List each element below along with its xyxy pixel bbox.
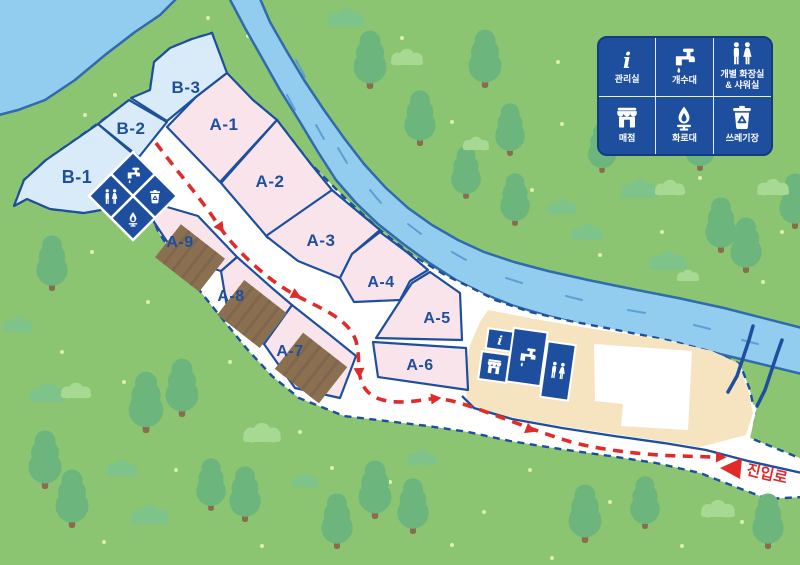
fire-icon bbox=[671, 105, 697, 131]
legend-item-label: 매점 bbox=[619, 133, 636, 144]
plot-label: B-1 bbox=[62, 167, 93, 187]
store-icon bbox=[614, 105, 640, 131]
legend: 관리실 개수대 개별 화장실 & 샤워실 매점 화로대 쓰레기장 bbox=[597, 36, 773, 156]
plot-label: A-9 bbox=[166, 234, 193, 251]
plot-label: A-5 bbox=[423, 310, 450, 327]
legend-item-store: 매점 bbox=[599, 97, 656, 155]
plot-label: A-1 bbox=[210, 115, 239, 134]
plot-label: B-3 bbox=[172, 78, 201, 97]
plot-label: A-7 bbox=[276, 343, 303, 360]
facility-tile-faucet bbox=[506, 328, 547, 386]
plot-label: B-2 bbox=[117, 119, 146, 138]
trash-icon bbox=[729, 105, 755, 131]
faucet-icon bbox=[671, 47, 697, 73]
legend-item-firepit: 화로대 bbox=[656, 97, 713, 155]
legend-item-restroom: 개별 화장실 & 샤워실 bbox=[714, 38, 771, 97]
plot-label: A-8 bbox=[217, 288, 244, 305]
restroom-icon bbox=[729, 41, 755, 67]
plot-label: A-2 bbox=[256, 172, 285, 191]
campground-map: i bbox=[0, 0, 800, 565]
legend-item-label: 관리실 bbox=[615, 74, 640, 85]
plot-label: A-4 bbox=[367, 274, 394, 291]
plot-label: A-3 bbox=[307, 231, 336, 250]
info-icon bbox=[615, 48, 639, 72]
legend-item-label: 개별 화장실 & 샤워실 bbox=[720, 69, 764, 92]
legend-item-label: 개수대 bbox=[672, 75, 697, 86]
legend-item-trash: 쓰레기장 bbox=[714, 97, 771, 155]
legend-item-label: 화로대 bbox=[672, 133, 697, 144]
legend-item-sink: 개수대 bbox=[656, 38, 713, 97]
plot-label: A-6 bbox=[406, 357, 433, 374]
legend-item-label: 쓰레기장 bbox=[726, 133, 759, 144]
legend-item-office: 관리실 bbox=[599, 38, 656, 97]
